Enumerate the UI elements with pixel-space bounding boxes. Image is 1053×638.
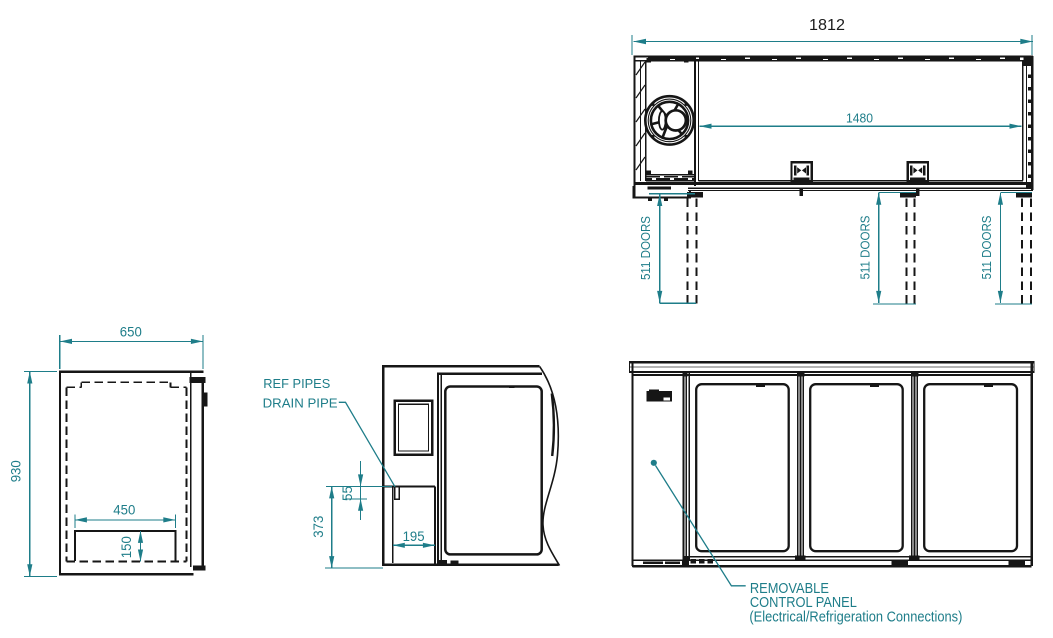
svg-text:150: 150 [118, 536, 134, 558]
svg-text:511 DOORS: 511 DOORS [859, 216, 873, 280]
svg-text:1812: 1812 [809, 17, 845, 34]
svg-text:650: 650 [120, 324, 142, 340]
svg-text:(Electrical/Refrigeration Conn: (Electrical/Refrigeration Connections) [749, 609, 962, 625]
svg-text:930: 930 [8, 460, 24, 482]
svg-text:REF PIPES: REF PIPES [263, 376, 330, 391]
svg-text:1480: 1480 [846, 111, 873, 126]
svg-text:373: 373 [310, 515, 326, 537]
svg-text:DRAIN PIPE: DRAIN PIPE [263, 395, 338, 410]
svg-text:55: 55 [339, 486, 355, 501]
svg-text:511 DOORS: 511 DOORS [639, 216, 653, 280]
svg-text:450: 450 [113, 502, 135, 518]
svg-text:511 DOORS: 511 DOORS [980, 216, 994, 280]
svg-text:195: 195 [403, 528, 425, 544]
